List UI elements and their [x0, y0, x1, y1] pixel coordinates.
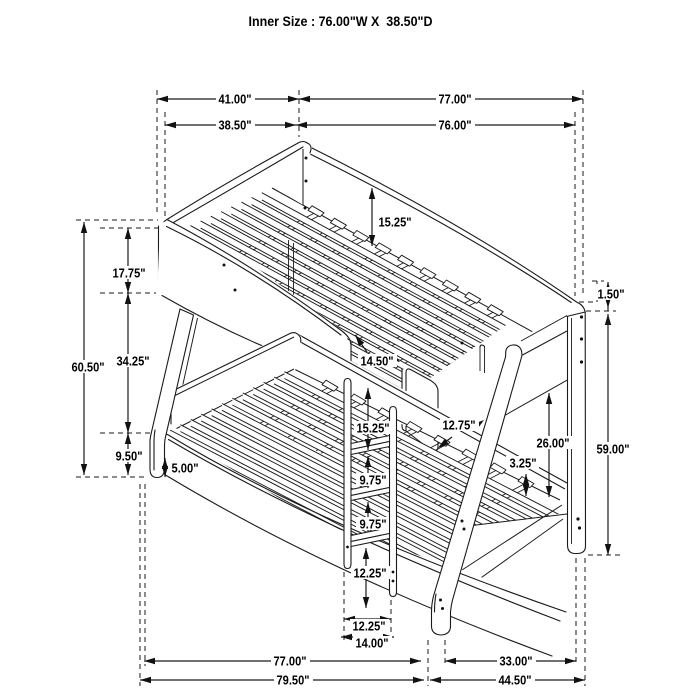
svg-text:12.25": 12.25" [354, 566, 387, 581]
svg-text:34.25": 34.25" [117, 354, 150, 369]
svg-text:17.75": 17.75" [113, 266, 146, 281]
svg-text:9.50": 9.50" [116, 449, 143, 464]
svg-text:12.25": 12.25" [353, 619, 386, 634]
svg-text:15.25": 15.25" [357, 421, 390, 436]
svg-text:14.50": 14.50" [361, 354, 394, 369]
svg-text:15.25": 15.25" [379, 215, 412, 230]
svg-text:14.00": 14.00" [356, 636, 389, 651]
svg-text:79.50": 79.50" [277, 673, 310, 688]
svg-text:9.75": 9.75" [360, 517, 387, 532]
svg-text:41.00": 41.00" [219, 92, 252, 107]
svg-text:9.75": 9.75" [360, 473, 387, 488]
svg-text:60.50": 60.50" [72, 360, 105, 375]
svg-text:33.00": 33.00" [500, 654, 533, 669]
svg-text:3.25": 3.25" [510, 456, 537, 471]
svg-text:59.00": 59.00" [597, 442, 630, 457]
svg-text:44.50": 44.50" [499, 673, 532, 688]
svg-text:77.00": 77.00" [439, 92, 472, 107]
svg-text:76.00": 76.00" [439, 118, 472, 133]
svg-text:12.75": 12.75" [443, 418, 476, 433]
svg-text:38.50": 38.50" [219, 118, 252, 133]
svg-text:26.00": 26.00" [537, 436, 570, 451]
svg-text:1.50": 1.50" [598, 287, 625, 302]
svg-text:Inner Size : 76.00"W X 38.50": Inner Size : 76.00"W X 38.50"D [249, 14, 433, 30]
svg-text:5.00": 5.00" [172, 461, 199, 476]
svg-text:77.00": 77.00" [274, 654, 307, 669]
